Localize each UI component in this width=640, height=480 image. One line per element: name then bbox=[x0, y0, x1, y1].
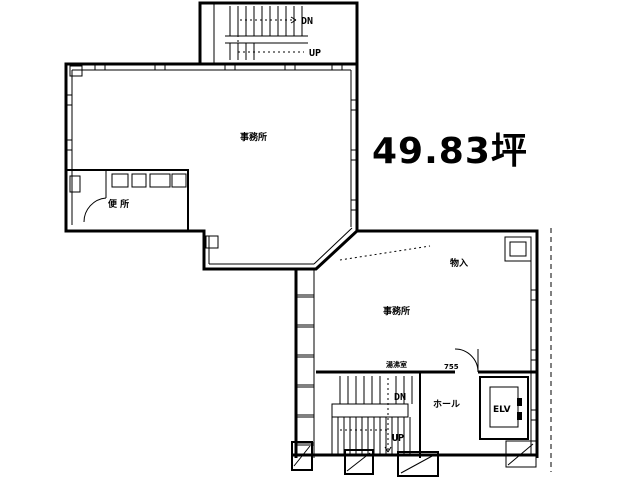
bottom-stair-down-label: DN bbox=[394, 392, 406, 403]
bottom-stair-up-label: UP bbox=[392, 433, 404, 444]
plan-background bbox=[0, 0, 640, 480]
floor-plan: DN UP 事務所 49.83坪 便 所 物入 事務所 bbox=[0, 0, 640, 480]
elevator-door-mark bbox=[517, 412, 522, 420]
floor-plan-drawing: DN UP 事務所 49.83坪 便 所 物入 事務所 bbox=[0, 0, 640, 480]
top-stair-down-label: DN bbox=[301, 16, 313, 27]
toilet-label: 便 所 bbox=[108, 198, 129, 210]
hall-label: ホール bbox=[433, 399, 460, 410]
elevator-door-mark bbox=[517, 398, 522, 406]
area-label: 49.83坪 bbox=[372, 131, 528, 172]
lower-room-label: 事務所 bbox=[383, 305, 410, 317]
kitchenette-label: 湯沸室 bbox=[386, 360, 407, 369]
dimension-label: 755 bbox=[444, 363, 459, 371]
storage-label: 物入 bbox=[450, 257, 468, 269]
elevator-label: ELV bbox=[493, 405, 511, 415]
top-stair-up-label: UP bbox=[309, 48, 321, 59]
upper-room-label: 事務所 bbox=[240, 131, 267, 143]
